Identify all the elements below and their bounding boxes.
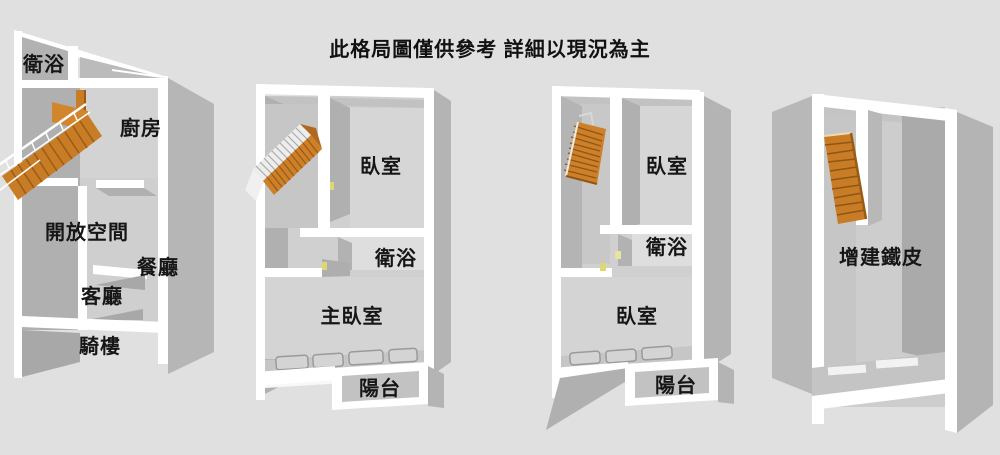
room-label-bedroom-3f-bottom: 臥室 bbox=[616, 307, 658, 327]
room-label-bedroom-2f: 臥室 bbox=[360, 157, 402, 177]
floorplan-unit-3 bbox=[546, 86, 734, 430]
room-label-metal-addition: 增建鐵皮 bbox=[839, 248, 923, 268]
room-label-dining: 餐廳 bbox=[137, 258, 179, 278]
room-label-master-bedroom: 主臥室 bbox=[321, 307, 384, 327]
floorplan-diagram: 此格局圖僅供參考 詳細以現況為主 衛浴 廚房 開放空間 餐廳 客廳 騎樓 臥室 … bbox=[0, 0, 1000, 455]
room-label-balcony-2f: 陽台 bbox=[359, 379, 401, 399]
room-label-open-space: 開放空間 bbox=[45, 223, 129, 243]
room-label-kitchen: 廚房 bbox=[120, 119, 162, 139]
room-label-bedroom-3f-top: 臥室 bbox=[646, 157, 688, 177]
floorplan-canvas bbox=[0, 0, 1000, 455]
room-label-bathroom-1f: 衛浴 bbox=[23, 55, 65, 75]
room-label-arcade: 騎樓 bbox=[79, 337, 121, 357]
room-label-bathroom-2f: 衛浴 bbox=[375, 249, 417, 269]
disclaimer-title: 此格局圖僅供參考 詳細以現況為主 bbox=[329, 33, 651, 62]
room-label-balcony-3f: 陽台 bbox=[655, 376, 697, 396]
room-label-bathroom-3f: 衛浴 bbox=[646, 238, 688, 258]
floorplan-unit-2 bbox=[245, 84, 451, 410]
floorplan-unit-1 bbox=[0, 30, 214, 378]
room-label-living: 客廳 bbox=[81, 287, 123, 307]
